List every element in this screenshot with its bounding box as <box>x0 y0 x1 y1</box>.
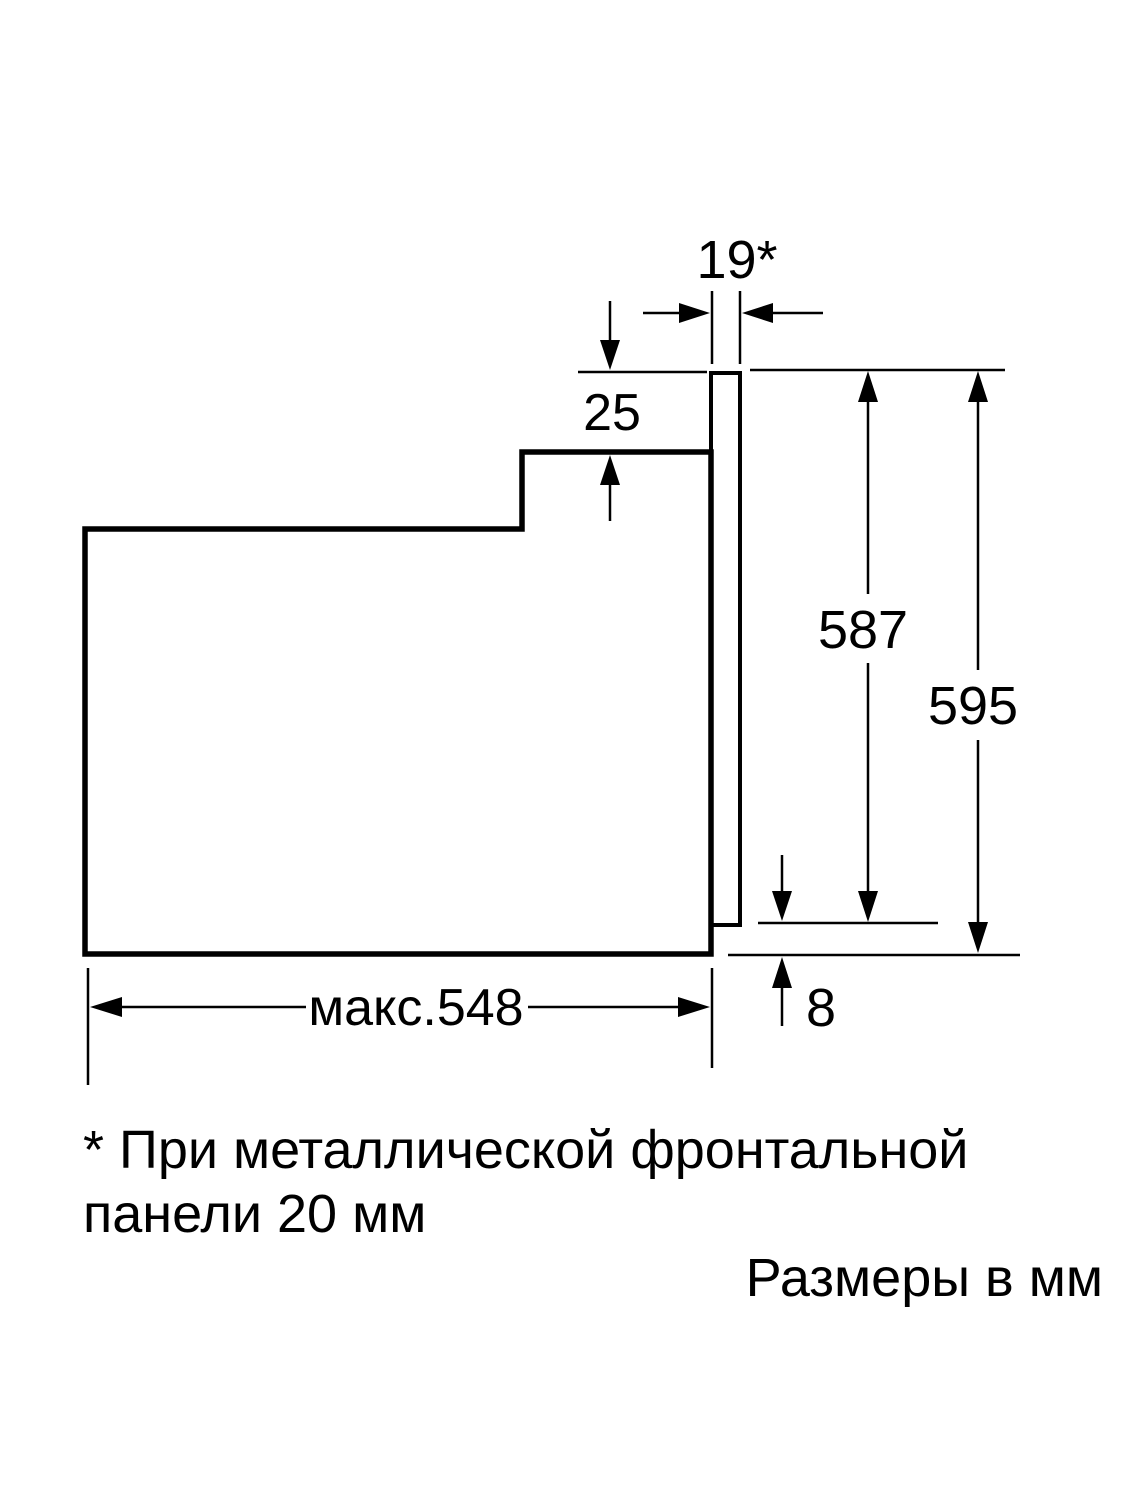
arrow-down-icon <box>858 891 878 922</box>
dim-value-587: 587 <box>818 600 908 660</box>
footnote-line-2: панели 20 мм <box>83 1182 968 1246</box>
dim-max-depth: макс.548 <box>88 968 712 1085</box>
arrow-up-icon <box>772 957 792 988</box>
arrow-down-icon <box>600 340 620 370</box>
arrow-right-icon <box>678 997 710 1017</box>
units-note: Размеры в мм <box>746 1248 1103 1308</box>
arrow-down-icon <box>772 891 792 921</box>
oven-side-profile <box>85 373 740 954</box>
arrow-right-icon <box>679 303 710 323</box>
footnote: * При металлической фронтальной панели 2… <box>83 1118 968 1246</box>
dim-value-25: 25 <box>583 384 641 442</box>
front-panel-outline <box>711 373 740 925</box>
dim-body-height: 587 <box>758 371 938 923</box>
dim-value-max548: макс.548 <box>308 979 523 1037</box>
arrow-down-icon <box>968 922 988 953</box>
dim-bottom-offset: 8 <box>772 855 836 1038</box>
dim-value-8: 8 <box>806 978 836 1038</box>
arrow-up-icon <box>858 371 878 402</box>
dim-top-recess: 25 <box>578 301 707 521</box>
dim-front-panel-thickness: 19* <box>643 230 823 364</box>
arrow-left-icon <box>90 997 122 1017</box>
dim-value-19: 19* <box>696 230 777 290</box>
oven-body-outline <box>85 452 711 954</box>
dim-value-595: 595 <box>928 676 1018 736</box>
arrow-up-icon <box>968 371 988 402</box>
dim-overall-height: 595 <box>728 371 1020 955</box>
footnote-line-1: * При металлической фронтальной <box>83 1118 968 1182</box>
dimension-diagram-page: 19* 25 587 595 <box>0 0 1125 1500</box>
arrow-left-icon <box>742 303 773 323</box>
arrow-up-icon <box>600 455 620 485</box>
